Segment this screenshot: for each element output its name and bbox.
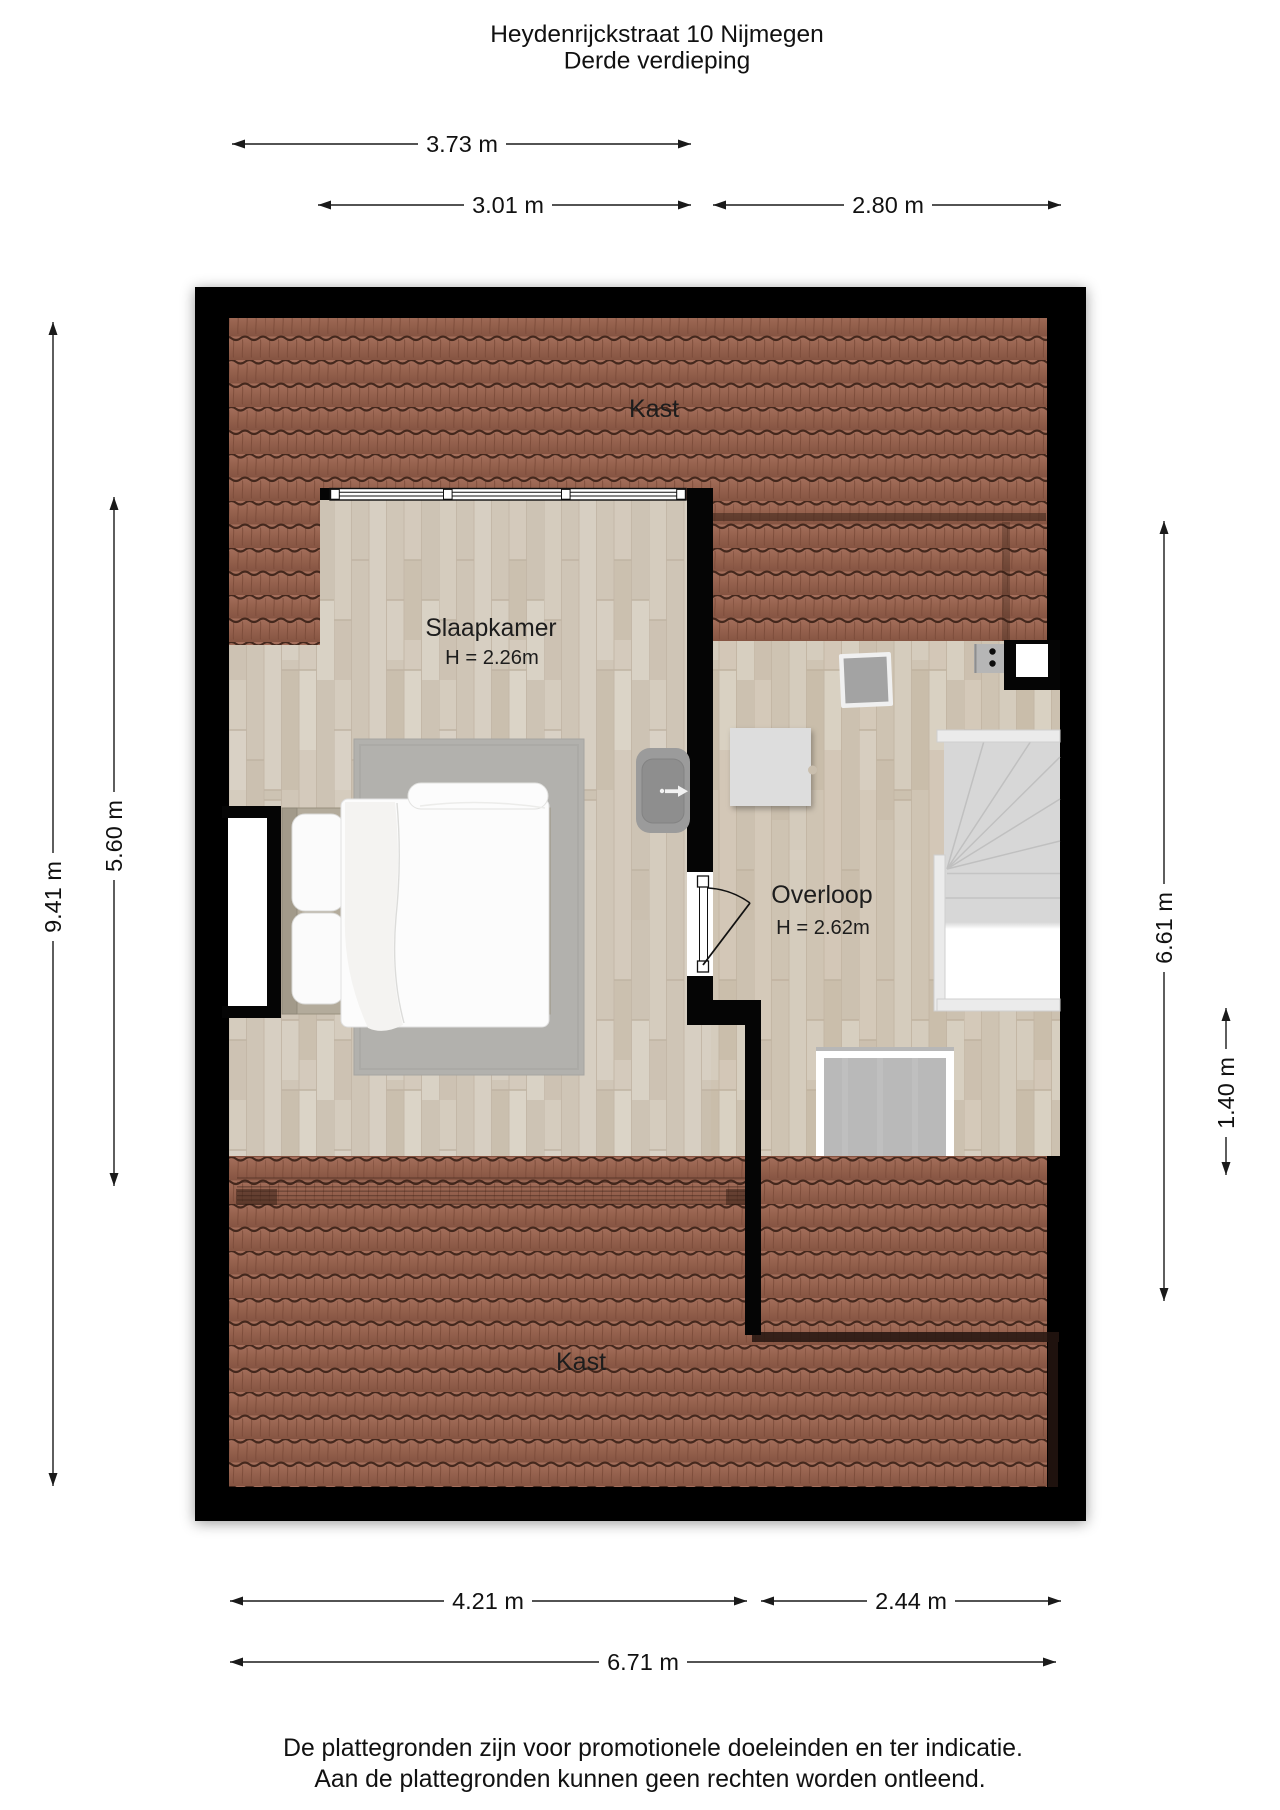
svg-text:3.73 m: 3.73 m (426, 131, 498, 157)
svg-text:3.01 m: 3.01 m (472, 192, 544, 218)
svg-text:Slaapkamer: Slaapkamer (425, 615, 556, 642)
svg-text:2.44 m: 2.44 m (875, 1588, 947, 1614)
svg-text:Overloop: Overloop (771, 881, 872, 909)
svg-text:5.60 m: 5.60 m (101, 800, 127, 872)
svg-text:Derde verdieping: Derde verdieping (564, 48, 751, 75)
svg-text:Kast: Kast (556, 1348, 606, 1376)
svg-text:1.40 m: 1.40 m (1213, 1057, 1239, 1129)
svg-text:2.80 m: 2.80 m (852, 192, 924, 218)
svg-text:De plattegronden zijn voor pro: De plattegronden zijn voor promotionele … (283, 1735, 1023, 1762)
svg-text:H = 2.26m: H = 2.26m (445, 647, 539, 669)
svg-text:4.21 m: 4.21 m (452, 1588, 524, 1614)
svg-text:6.71 m: 6.71 m (607, 1649, 679, 1675)
svg-text:Heydenrijckstraat 10 Nijmegen: Heydenrijckstraat 10 Nijmegen (490, 21, 824, 48)
svg-text:Kast: Kast (629, 395, 679, 423)
svg-text:Aan de plattegronden kunnen ge: Aan de plattegronden kunnen geen rechten… (314, 1766, 985, 1793)
svg-text:9.41 m: 9.41 m (40, 861, 66, 933)
svg-text:H = 2.62m: H = 2.62m (776, 917, 870, 939)
svg-text:6.61 m: 6.61 m (1151, 892, 1177, 964)
